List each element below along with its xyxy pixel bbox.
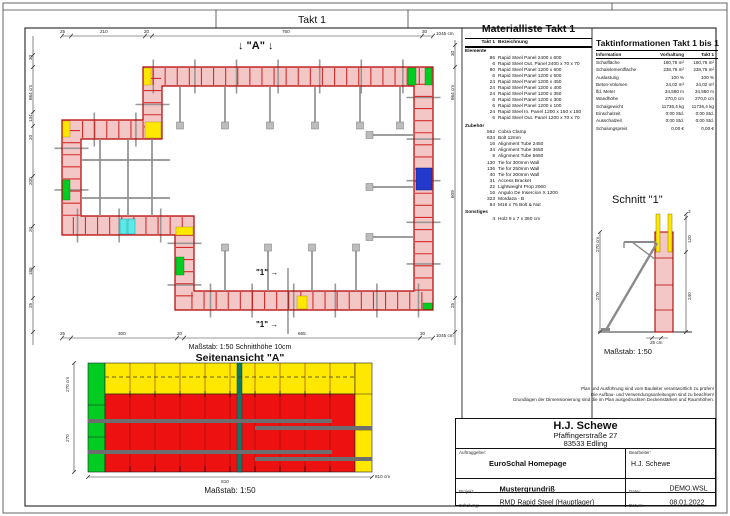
col-qty: Takt 1 [465, 40, 498, 45]
dim-label: 185 [28, 267, 33, 275]
dim-label: 609 [450, 190, 455, 198]
section-marker-1-top: "1" → [256, 268, 278, 277]
col-information: Information [596, 52, 648, 57]
dim-total-label: 1045 cm [436, 31, 454, 36]
dim-label: 270 [65, 434, 70, 442]
section-marker-1-bottom: "1" → [256, 320, 278, 329]
dim-total-label: 810 cm [375, 474, 390, 479]
dim-label: 120 [687, 235, 692, 243]
plan-notes: Plan und Ausführung sind vom Bauleiter v… [440, 386, 714, 403]
elevation-view [72, 361, 374, 479]
dim-total-label: 664 cm [450, 85, 455, 100]
dim-label: 25 [60, 29, 65, 34]
dim-total-label: 270 cm [595, 237, 600, 252]
dim-label: 3 [688, 209, 691, 214]
col-name: Bezeichnung [498, 40, 528, 45]
titleblock-row-formwork: Schalung: RMD Rapid Steel (Hauptlager) D… [456, 493, 715, 507]
group-zubehoer: Zubehör [465, 123, 592, 131]
materialliste: Materialliste Takt 1 Takt 1 Bezeichnung … [465, 23, 592, 223]
dim-total-label: 270 cm [65, 377, 70, 392]
plan-view [31, 34, 457, 345]
dim-label: 300 [118, 331, 126, 336]
taktinfo-rows: Schalfläche 180,76 m² 180,76 m² Schalele… [596, 59, 718, 132]
datum-value: 08.01.2022 [669, 499, 704, 506]
schnitt-title: Schnitt "1" [612, 194, 663, 206]
taktinfo-header: Information Vorhaltung Takt 1 [596, 50, 718, 59]
taktinfo-title: Taktinformationen Takt 1 bis 1 [596, 38, 718, 48]
bearbeiter-label: Bearbeiter: [629, 450, 712, 455]
dim-label: 665 [298, 331, 306, 336]
dim-label: 30 [420, 331, 425, 336]
seitenansicht-title: Seitenansicht "A" [140, 352, 340, 364]
material-row: 6Rapid Steel Out. Panel 1200 x 70 x 70 [465, 116, 592, 122]
dim-label: 25 [450, 303, 455, 308]
dim-label: 20 [28, 135, 33, 140]
dim-label: 760 [282, 29, 290, 34]
dim-label: 30 [28, 55, 33, 60]
sonstiges-list: 4Holz 9 x 7 x 360 cm [465, 217, 592, 223]
dim-label: 25 [60, 331, 65, 336]
sheet-takt-label: Takt 1 [216, 14, 408, 26]
taktinfo-row: Auslastung 100 % 100 % [596, 74, 718, 81]
dim-label: 20 [177, 331, 182, 336]
datei-value: DEMO.WSL [669, 485, 707, 492]
dim-total-label: 1045 cm [436, 333, 454, 338]
auftraggeber-label: Auftraggeber: [459, 450, 622, 455]
bearbeiter-value: H.J. Schewe [631, 461, 712, 468]
schnitt-scale: Maßstab: 1:50 [604, 347, 652, 356]
auftraggeber-value: EuroSchal Homepage [489, 459, 622, 468]
schnitt-view [598, 212, 692, 340]
taktinfo-row: Ausschalzeit 0:00 Std. 0:00 Std. [596, 117, 718, 124]
taktinfo-row: Schalelementfläche 238,76 m² 238,76 m² [596, 66, 718, 73]
dim-label: 270 [595, 292, 600, 300]
title-block: H.J. Schewe Pfaffingerstraße 27 83533 Ed… [455, 418, 716, 506]
taktinfo-row: Schalungspreis 0,00 € 0,00 € [596, 125, 718, 132]
titleblock-row-client: Auftraggeber: EuroSchal Homepage Bearbei… [456, 449, 715, 479]
materialliste-header: Takt 1 Bezeichnung [465, 38, 592, 48]
elemente-list: 86Rapid Steel Panel 2400 x 600 6Rapid St… [465, 56, 592, 123]
seitenansicht-scale: Maßstab: 1:50 [155, 486, 305, 495]
dim-label: 30 [450, 51, 455, 56]
dim-label: 210 [100, 29, 108, 34]
taktinfo-row: lfd. Meter 34,580 m 34,580 m [596, 88, 718, 95]
col-vorhaltung: Vorhaltung [648, 52, 684, 57]
titleblock-row-project: Projekt: Mustergrundriß Datei: DEMO.WSL [456, 479, 715, 493]
dim-label: 25 [28, 303, 33, 308]
taktinfo-row: Einschalzeit 0:00 Std. 0:00 Std. [596, 110, 718, 117]
taktinfo-row: Wandhöhe 270,0 cm 270,0 cm [596, 95, 718, 102]
dim-label: 25 cm [650, 340, 663, 345]
materialliste-title: Materialliste Takt 1 [465, 23, 592, 35]
taktinformationen: Taktinformationen Takt 1 bis 1 Informati… [596, 38, 718, 132]
view-marker-A: ↓ "A" ↓ [238, 40, 274, 52]
material-row: 4Holz 9 x 7 x 360 cm [465, 217, 592, 223]
dim-label: 240 [687, 292, 692, 300]
dim-total-label: 664 cm [28, 85, 33, 100]
dim-label: 20 [144, 29, 149, 34]
col-takt1: Takt 1 [684, 52, 714, 57]
zubehoer-list: 562Cobra Clamp 634Bolt 12mm 16Alignment … [465, 130, 592, 209]
taktinfo-row: Schalfläche 180,76 m² 180,76 m² [596, 59, 718, 66]
dim-label: 134 [28, 114, 33, 122]
group-elemente: Elemente [465, 48, 592, 56]
dim-label: 810 [205, 479, 245, 484]
schalung-value: RMD Rapid Steel (Hauptlager) [499, 499, 594, 506]
drawing-sheet: Takt 1 ↓ "A" ↓ "1" → "1" → 25 210 20 760… [0, 0, 730, 516]
plan-scale-note: Maßstab: 1:50 Schnitthöhe 10cm [140, 344, 340, 351]
taktinfo-row: Schalgewicht 11736,4 kg 11736,4 kg [596, 103, 718, 110]
datum-label: Datum: [629, 503, 665, 508]
schalung-label: Schalung: [459, 503, 495, 508]
company-city: 83533 Edling [456, 440, 715, 448]
dim-label: 200 [28, 177, 33, 185]
company-header: H.J. Schewe Pfaffingerstraße 27 83533 Ed… [456, 419, 715, 449]
dim-label: 20 [28, 227, 33, 232]
dim-label: 30 [422, 29, 427, 34]
group-sonstiges: Sonstiges [465, 209, 592, 217]
taktinfo-row: Beton-Volumen 24,02 m³ 24,02 m³ [596, 81, 718, 88]
push-pull-prop [606, 243, 657, 330]
note-line: Grundlagen der Dimensionierung sind die … [440, 397, 714, 403]
